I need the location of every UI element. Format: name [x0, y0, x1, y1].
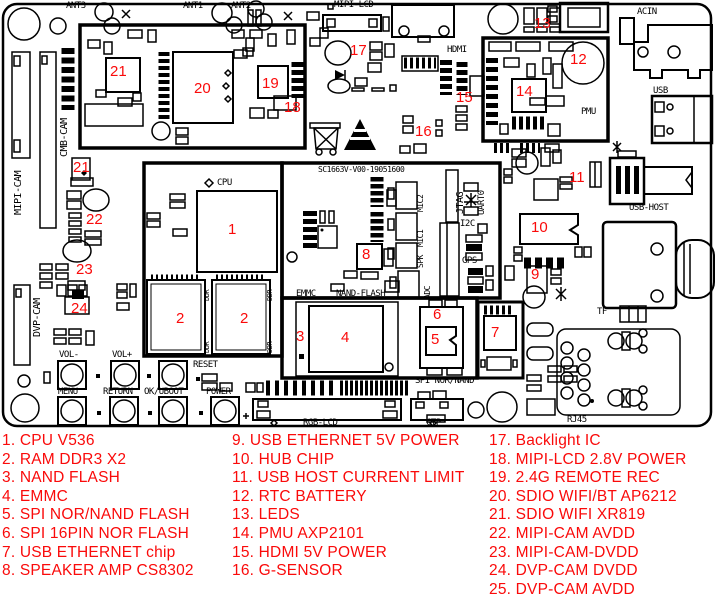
silk-label-return: RETURN: [103, 388, 133, 397]
legend-item: 3. NAND FLASH: [2, 469, 120, 486]
silk-label-hdmi: HDMI: [447, 46, 467, 55]
legend-item: 16. G-SENSOR: [232, 562, 343, 579]
pcb-diagram-screen: ANT3ANT1ANT2MIPI-LCDHDMIACINUSBPMUUSB-HO…: [0, 0, 715, 602]
silk-label-power: POWER: [206, 388, 231, 397]
component-number-11: 11: [569, 170, 585, 185]
silk-label-spk: SPK: [417, 255, 425, 268]
silk-label-usb-host: USB-HOST: [629, 204, 668, 213]
silk-label-ant2: ANT2: [231, 2, 251, 11]
silk-label-ddr-3: DDR: [267, 290, 274, 301]
legend-item: 22. MIPI-CAM AVDD: [489, 525, 635, 542]
component-number-24: 24: [71, 301, 88, 316]
silk-label-adc: ADC: [424, 286, 432, 299]
legend-item: 11. USB HOST CURRENT LIMIT: [232, 469, 465, 486]
silk-label-pmu: PMU: [581, 108, 596, 117]
legend-item: 5. SPI NOR/NAND FLASH: [2, 506, 190, 523]
legend-item: 2. RAM DDR3 X2: [2, 451, 126, 468]
legend-item: 24. DVP-CAM DVDD: [489, 562, 638, 579]
component-number-21: 21: [110, 64, 127, 79]
text-layer: ANT3ANT1ANT2MIPI-LCDHDMIACINUSBPMUUSB-HO…: [0, 0, 715, 602]
legend-item: 20. SDIO WIFI/BT AP6212: [489, 488, 677, 505]
component-number-1: 1: [228, 222, 236, 237]
silk-label-tf: TF: [597, 308, 607, 317]
silk-label-uart0: UART0: [478, 190, 487, 215]
silk-label-ctp: CTP: [426, 419, 441, 428]
silk-label-mic2: MIC2: [417, 195, 425, 212]
silk-label-cpu: CPU: [217, 179, 232, 188]
silk-label-ddr-2: DDR: [204, 342, 211, 353]
silk-label-vol-plus: VOL+: [112, 351, 132, 360]
silk-label-dvp-cam: DVP-CAM: [33, 298, 43, 337]
legend-item: 25. DVP-CAM AVDD: [489, 581, 635, 598]
silk-label-gps: GPS: [462, 257, 477, 266]
silk-label-menu: MENU: [58, 388, 78, 397]
silk-label-emmc: EMMC: [296, 290, 316, 299]
legend-item: 15. HDMI 5V POWER: [232, 544, 387, 561]
component-number-16: 16: [415, 124, 432, 139]
component-number-4: 4: [341, 330, 349, 345]
component-number-17: 17: [350, 43, 367, 58]
component-number-3: 3: [296, 329, 304, 344]
silk-label-vol-minus: VOL-: [59, 351, 79, 360]
legend-item: 8. SPEAKER AMP CS8302: [2, 562, 194, 579]
legend-item: 6. SPI 16PIN NOR FLASH: [2, 525, 189, 542]
legend-item: 4. EMMC: [2, 488, 68, 505]
legend-item: 10. HUB CHIP: [232, 451, 334, 468]
legend-item: 18. MIPI-LCD 2.8V POWER: [489, 451, 687, 468]
component-number-2: 2: [240, 311, 248, 326]
legend-item: 21. SDIO WIFI XR819: [489, 506, 645, 523]
silk-label-mic1: MIC1: [417, 230, 425, 247]
legend-item: 7. USB ETHERNET chip: [2, 544, 175, 561]
silk-label-rj45: RJ45: [567, 416, 587, 425]
silk-label-usb: USB: [653, 87, 668, 96]
component-number-21: 21: [73, 160, 90, 175]
silk-label-acin: ACIN: [637, 8, 657, 17]
silk-label-ddr-1: DDR: [204, 290, 211, 301]
component-number-10: 10: [531, 220, 548, 235]
silk-label-i2c: I2C: [460, 220, 475, 229]
component-number-13: 13: [534, 16, 551, 31]
silk-label-mipi-cam: MIPI-CAM: [14, 171, 24, 215]
silk-label-board-code: SC1663V-V00-19051600: [318, 166, 404, 174]
silk-label-nand-flash: NAND-FLASH: [336, 290, 385, 299]
silk-label-spi-nor-nand: SPI NOR/NAND: [415, 377, 474, 386]
legend-item: 23. MIPI-CAM-DVDD: [489, 544, 639, 561]
component-number-8: 8: [362, 247, 370, 262]
legend-item: 17. Backlight IC: [489, 432, 601, 449]
component-number-2: 2: [176, 311, 184, 326]
component-number-18: 18: [284, 100, 301, 115]
silk-label-rgb-lcd: RGB-LCD: [303, 419, 337, 428]
component-number-23: 23: [76, 262, 93, 277]
silk-label-ant3: ANT3: [66, 2, 86, 11]
component-number-12: 12: [570, 52, 587, 67]
silk-label-jtag: JTAG: [456, 192, 466, 214]
component-number-15: 15: [456, 90, 473, 105]
component-number-9: 9: [531, 267, 539, 282]
component-number-20: 20: [194, 81, 211, 96]
component-number-7: 7: [491, 325, 499, 340]
component-number-14: 14: [516, 84, 533, 99]
legend-item: 19. 2.4G REMOTE REC: [489, 469, 660, 486]
component-number-5: 5: [431, 332, 439, 347]
silk-label-ant1: ANT1: [183, 2, 203, 11]
silk-label-cmb-cam: CMB-CAM: [60, 118, 70, 157]
silk-label-ok-uboot: OK/UBOOT: [144, 388, 183, 397]
silk-label-mipi-lcd: MIPI-LCD: [334, 1, 373, 10]
legend-item: 9. USB ETHERNET 5V POWER: [232, 432, 460, 449]
component-number-19: 19: [262, 76, 279, 91]
legend-item: 12. RTC BATTERY: [232, 488, 367, 505]
legend-item: 14. PMU AXP2101: [232, 525, 364, 542]
silk-label-ddr-4: DDR: [267, 342, 274, 353]
component-number-6: 6: [433, 307, 441, 322]
component-number-22: 22: [86, 212, 103, 227]
legend-item: 1. CPU V536: [2, 432, 95, 449]
legend-item: 13. LEDS: [232, 506, 300, 523]
silk-label-reset: RESET: [193, 361, 218, 370]
